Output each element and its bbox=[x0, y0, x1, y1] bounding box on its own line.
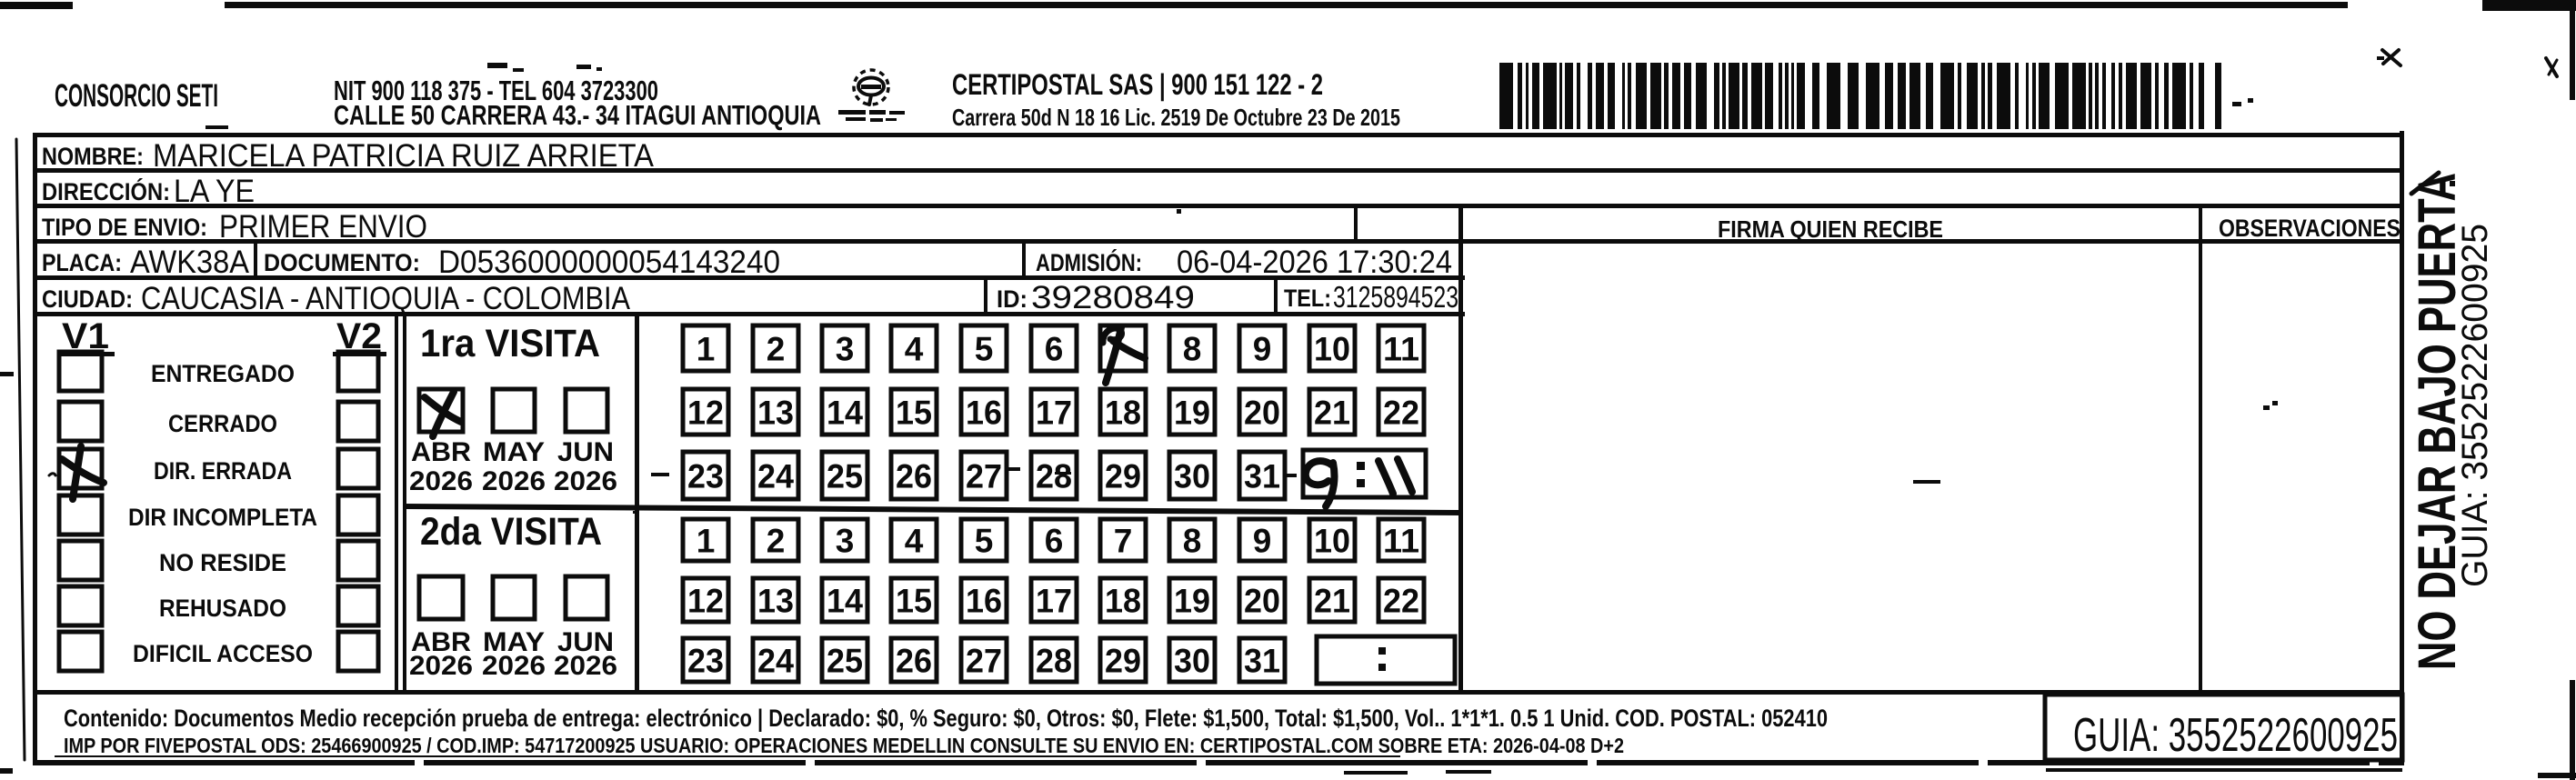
svg-text:30: 30 bbox=[1174, 643, 1210, 680]
svg-text:18: 18 bbox=[1105, 583, 1141, 620]
svg-text:27: 27 bbox=[966, 458, 1002, 495]
svg-text:28: 28 bbox=[1036, 643, 1072, 680]
svg-text:24: 24 bbox=[757, 643, 794, 680]
svg-text:2: 2 bbox=[767, 523, 786, 560]
svg-text:IMP POR FIVEPOSTAL ODS: 254669: IMP POR FIVEPOSTAL ODS: 25466900925 / CO… bbox=[64, 734, 1624, 757]
svg-text:39280849: 39280849 bbox=[1031, 280, 1195, 315]
svg-text:OBSERVACIONES: OBSERVACIONES bbox=[2219, 215, 2401, 242]
svg-text:22: 22 bbox=[1383, 583, 1419, 620]
svg-text:18: 18 bbox=[1105, 395, 1141, 432]
svg-text:2da VISITA: 2da VISITA bbox=[420, 510, 602, 554]
svg-text:17: 17 bbox=[1036, 395, 1072, 432]
svg-text:DIFICIL ACCESO: DIFICIL ACCESO bbox=[133, 640, 313, 667]
svg-text:16: 16 bbox=[966, 395, 1002, 432]
svg-text:CERRADO: CERRADO bbox=[168, 410, 277, 437]
svg-text:27: 27 bbox=[966, 643, 1002, 680]
svg-text:2026: 2026 bbox=[482, 651, 546, 681]
svg-text:DIR INCOMPLETA: DIR INCOMPLETA bbox=[128, 504, 317, 531]
svg-text:D0536000000054143240: D0536000000054143240 bbox=[438, 245, 780, 280]
svg-text:5: 5 bbox=[975, 523, 994, 560]
svg-text:ENTREGADO: ENTREGADO bbox=[151, 360, 295, 387]
svg-text:GUIA: 3552522600925: GUIA: 3552522600925 bbox=[2455, 224, 2495, 587]
svg-text:13: 13 bbox=[757, 583, 794, 620]
svg-text:6: 6 bbox=[1045, 331, 1064, 368]
svg-text:1: 1 bbox=[697, 523, 716, 560]
svg-text:26: 26 bbox=[896, 643, 932, 680]
svg-text:3125894523: 3125894523 bbox=[1333, 280, 1458, 314]
svg-text:6: 6 bbox=[1045, 523, 1064, 560]
svg-text:7: 7 bbox=[1114, 523, 1133, 560]
svg-text:8: 8 bbox=[1183, 331, 1202, 368]
svg-text:29: 29 bbox=[1105, 458, 1141, 495]
svg-text:CALLE 50 CARRERA 43.- 34 ITAGU: CALLE 50 CARRERA 43.- 34 ITAGUI ANTIOQUI… bbox=[334, 99, 821, 131]
svg-text:28: 28 bbox=[1036, 458, 1072, 495]
svg-text:11: 11 bbox=[1383, 523, 1419, 560]
svg-text:15: 15 bbox=[896, 583, 932, 620]
svg-text:ID:: ID: bbox=[997, 285, 1027, 313]
svg-text:PLACA:: PLACA: bbox=[42, 249, 122, 276]
svg-text:30: 30 bbox=[1174, 458, 1210, 495]
svg-text:ADMISIÓN:: ADMISIÓN: bbox=[1036, 248, 1142, 276]
svg-text:ABR: ABR bbox=[411, 437, 471, 467]
svg-text:FIRMA QUIEN RECIBE: FIRMA QUIEN RECIBE bbox=[1718, 215, 1943, 243]
svg-text:CIUDAD:: CIUDAD: bbox=[42, 285, 133, 313]
svg-text:13: 13 bbox=[757, 395, 794, 432]
svg-text:22: 22 bbox=[1383, 395, 1419, 432]
svg-text:2026: 2026 bbox=[482, 466, 546, 496]
svg-text:2026: 2026 bbox=[409, 651, 473, 681]
svg-text:Carrera 50d N 18 16 Lic. 2519: Carrera 50d N 18 16 Lic. 2519 De Octubre… bbox=[952, 104, 1400, 131]
svg-text:14: 14 bbox=[827, 583, 863, 620]
svg-text:11: 11 bbox=[1383, 331, 1419, 368]
svg-text:5: 5 bbox=[975, 331, 994, 368]
svg-text:2026: 2026 bbox=[409, 466, 473, 496]
svg-text:DIRECCIÓN:: DIRECCIÓN: bbox=[42, 177, 170, 205]
svg-text:15: 15 bbox=[896, 395, 932, 432]
svg-text:Contenido: Documentos Medio re: Contenido: Documentos Medio recepción pr… bbox=[64, 705, 1828, 732]
svg-text:19: 19 bbox=[1174, 583, 1210, 620]
svg-text:3: 3 bbox=[836, 331, 855, 368]
svg-text:24: 24 bbox=[757, 458, 794, 495]
svg-text:CERTIPOSTAL SAS | 900 151 122: CERTIPOSTAL SAS | 900 151 122 - 2 bbox=[952, 68, 1323, 101]
svg-text:JUN: JUN bbox=[557, 437, 614, 467]
svg-text:9: 9 bbox=[1253, 523, 1272, 560]
svg-text:NO RESIDE: NO RESIDE bbox=[159, 549, 286, 576]
svg-text:21: 21 bbox=[1314, 395, 1350, 432]
svg-text:16: 16 bbox=[966, 583, 1002, 620]
svg-text:1ra VISITA: 1ra VISITA bbox=[420, 322, 600, 365]
svg-text:21: 21 bbox=[1314, 583, 1350, 620]
svg-text:2026: 2026 bbox=[554, 466, 617, 496]
svg-text:29: 29 bbox=[1105, 643, 1141, 680]
svg-text:4: 4 bbox=[905, 523, 924, 560]
svg-text:25: 25 bbox=[827, 458, 863, 495]
svg-text:25: 25 bbox=[827, 643, 863, 680]
svg-text:12: 12 bbox=[687, 395, 724, 432]
svg-text:MARICELA PATRICIA RUIZ ARRIETA: MARICELA PATRICIA RUIZ ARRIETA bbox=[153, 138, 655, 174]
svg-text:17: 17 bbox=[1036, 583, 1072, 620]
svg-text:REHUSADO: REHUSADO bbox=[159, 595, 286, 622]
svg-text:DIR. ERRADA: DIR. ERRADA bbox=[154, 457, 292, 485]
svg-text:8: 8 bbox=[1183, 523, 1202, 560]
svg-text:4: 4 bbox=[905, 331, 924, 368]
svg-text:14: 14 bbox=[827, 395, 863, 432]
svg-text:PRIMER ENVIO: PRIMER ENVIO bbox=[219, 209, 427, 245]
svg-text:9: 9 bbox=[1253, 331, 1272, 368]
svg-text:23: 23 bbox=[687, 458, 724, 495]
svg-text:NOMBRE:: NOMBRE: bbox=[42, 143, 144, 170]
svg-text:19: 19 bbox=[1174, 395, 1210, 432]
svg-text:TIPO DE ENVIO:: TIPO DE ENVIO: bbox=[42, 214, 207, 241]
svg-text:DOCUMENTO:: DOCUMENTO: bbox=[264, 249, 420, 276]
svg-text:10: 10 bbox=[1314, 523, 1350, 560]
svg-text:23: 23 bbox=[687, 643, 724, 680]
svg-text:MAY: MAY bbox=[483, 437, 545, 467]
svg-text:CONSORCIO SETI: CONSORCIO SETI bbox=[55, 78, 218, 114]
svg-text:CAUCASIA - ANTIOQUIA - COLOMBI: CAUCASIA - ANTIOQUIA - COLOMBIA bbox=[141, 281, 631, 316]
svg-text:LA YE: LA YE bbox=[174, 174, 255, 209]
svg-text:TEL:: TEL: bbox=[1284, 285, 1331, 312]
svg-text:2: 2 bbox=[767, 331, 786, 368]
svg-text:2026: 2026 bbox=[554, 651, 617, 681]
svg-text:3: 3 bbox=[836, 523, 855, 560]
svg-text:20: 20 bbox=[1244, 395, 1280, 432]
svg-text:1: 1 bbox=[697, 331, 716, 368]
svg-text:31: 31 bbox=[1244, 458, 1280, 495]
svg-text:GUIA: 3552522600925: GUIA: 3552522600925 bbox=[2073, 709, 2398, 762]
svg-text:10: 10 bbox=[1314, 331, 1350, 368]
svg-text:26: 26 bbox=[896, 458, 932, 495]
svg-text:12: 12 bbox=[687, 583, 724, 620]
svg-text:AWK38A: AWK38A bbox=[130, 245, 250, 280]
svg-text:20: 20 bbox=[1244, 583, 1280, 620]
svg-text:06-04-2026 17:30:24: 06-04-2026 17:30:24 bbox=[1177, 245, 1452, 280]
svg-text:31: 31 bbox=[1244, 643, 1280, 680]
